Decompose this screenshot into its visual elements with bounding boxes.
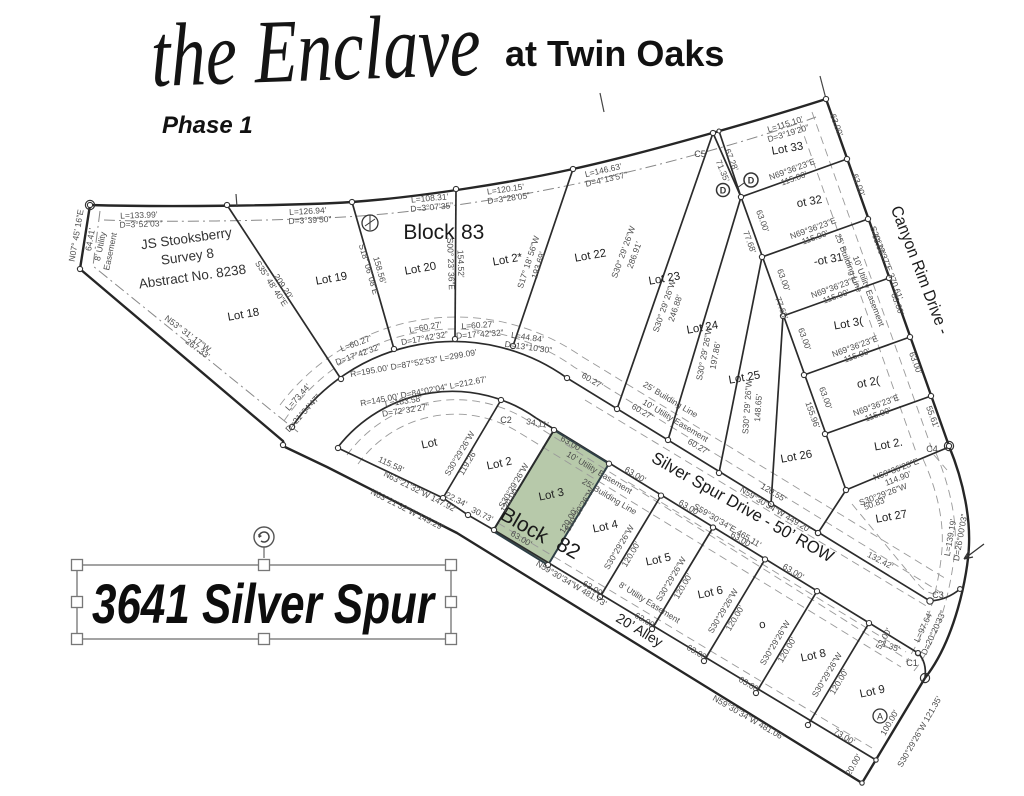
svg-text:D: D — [748, 176, 755, 186]
svg-text:D=3°52’03”: D=3°52’03” — [119, 218, 162, 229]
svg-text:C4: C4 — [926, 444, 938, 454]
svg-text:154.52’: 154.52’ — [456, 250, 467, 278]
svg-text:D: D — [720, 186, 727, 196]
svg-text:C5: C5 — [694, 149, 706, 159]
svg-text:C3: C3 — [932, 590, 944, 600]
svg-text:C1: C1 — [906, 658, 918, 668]
svg-text:at Twin Oaks: at Twin Oaks — [505, 33, 724, 74]
svg-text:S00° 23’ 36”E: S00° 23’ 36”E — [445, 238, 457, 291]
svg-text:A: A — [877, 712, 883, 722]
svg-text:3641 Silver Spur: 3641 Silver Spur — [92, 572, 437, 635]
svg-text:Phase 1: Phase 1 — [162, 112, 253, 139]
svg-text:the Enclave: the Enclave — [149, 0, 482, 106]
svg-text:C2: C2 — [500, 415, 512, 425]
svg-text:148.65’: 148.65’ — [752, 393, 764, 422]
svg-text:83: 83 — [461, 221, 484, 244]
